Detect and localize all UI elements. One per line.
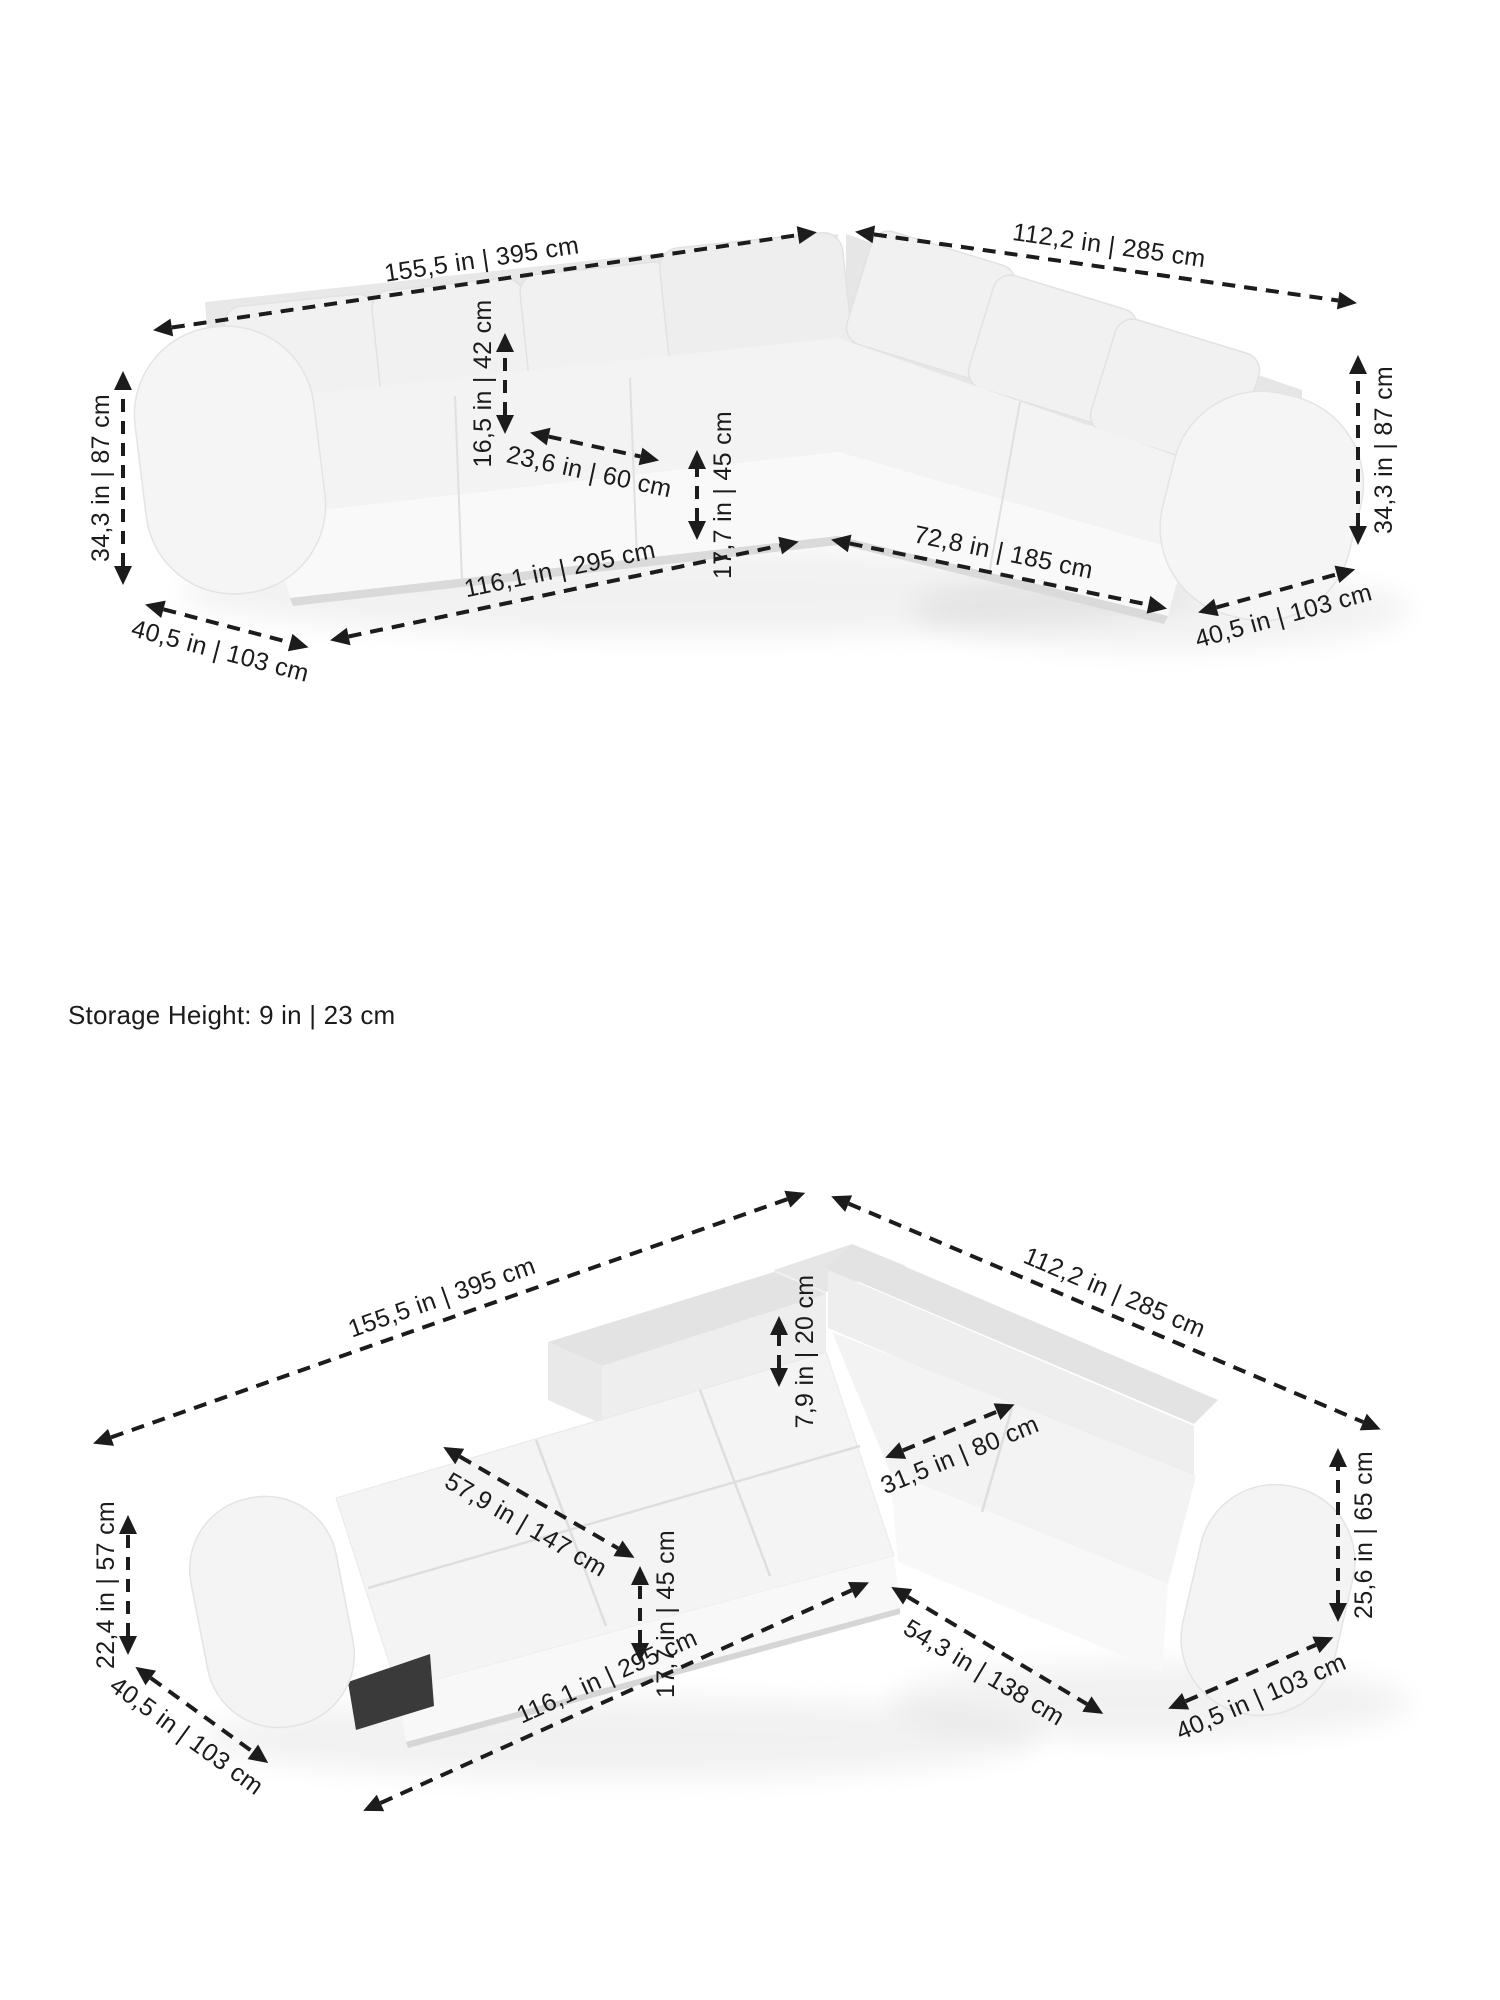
arrowhead-right-icon [639, 448, 661, 470]
dim-back-cushion-height: 16,5 in | 42 cm [503, 335, 507, 432]
sofa-illustration-sofa-mode [124, 227, 1410, 650]
left-armrest [177, 1484, 367, 1740]
arrowhead-right-icon [797, 223, 818, 244]
dashed-line [777, 1335, 781, 1368]
dimension-label: 25,6 in | 65 cm [1350, 1451, 1379, 1619]
dim-overall-height-left: 34,3 in | 87 cm [121, 373, 125, 583]
arrowhead-right-icon [496, 333, 514, 352]
arrowhead-left-icon [854, 223, 875, 243]
arrowhead-left-icon [1349, 526, 1367, 545]
dashed-line [121, 390, 125, 566]
arrowhead-left-icon [829, 531, 851, 552]
dim-side-height-right: 25,6 in | 65 cm [1336, 1450, 1340, 1620]
dashed-line [126, 1534, 130, 1636]
arrowhead-right-icon [1349, 355, 1367, 374]
dimension-label: 7,9 in | 20 cm [791, 1275, 820, 1429]
dashed-line [1336, 1467, 1340, 1603]
arrowhead-right-icon [1337, 292, 1358, 312]
arrowhead-right-icon [688, 450, 706, 469]
arrowhead-right-icon [1147, 596, 1169, 617]
dimension-label: 16,5 in | 42 cm [469, 299, 498, 467]
arrowhead-right-icon [114, 371, 132, 390]
dimension-label: 34,3 in | 87 cm [1370, 366, 1399, 534]
dashed-line [695, 469, 699, 521]
arrowhead-left-icon [1329, 1603, 1347, 1622]
arrowhead-right-icon [631, 1566, 649, 1585]
arrowhead-left-icon [328, 628, 350, 650]
arrowhead-left-icon [770, 1368, 788, 1387]
arrowhead-right-icon [119, 1515, 137, 1534]
arrowhead-left-icon [528, 424, 550, 446]
arrowhead-left-icon [688, 521, 706, 540]
dim-armrest-height-left: 22,4 in | 57 cm [126, 1517, 130, 1653]
arrowhead-right-icon [770, 1316, 788, 1335]
dim-seat-height: 17,7 in | 45 cm [695, 452, 699, 538]
arrowhead-left-icon [496, 415, 514, 434]
dashed-line [503, 352, 507, 415]
dashed-line [638, 1585, 642, 1643]
dimension-label: 34,3 in | 87 cm [87, 394, 116, 562]
storage-height-note: Storage Height: 9 in | 23 cm [68, 1000, 395, 1031]
arrowhead-right-icon [1329, 1448, 1347, 1467]
dim-overall-height-right: 34,3 in | 87 cm [1356, 357, 1360, 543]
arrowhead-left-icon [114, 566, 132, 585]
arrowhead-right-icon [778, 533, 800, 555]
arrowhead-left-icon [152, 319, 173, 340]
dim-backrest-above-bed-height: 7,9 in | 20 cm [777, 1318, 781, 1385]
arrowhead-left-icon [119, 1636, 137, 1655]
dimension-label: 22,4 in | 57 cm [92, 1501, 121, 1669]
product-dimensions-sheet: 155,5 in | 395 cm 112,2 in | 285 cm 16,5… [0, 0, 1500, 2000]
dashed-line [1356, 374, 1360, 526]
